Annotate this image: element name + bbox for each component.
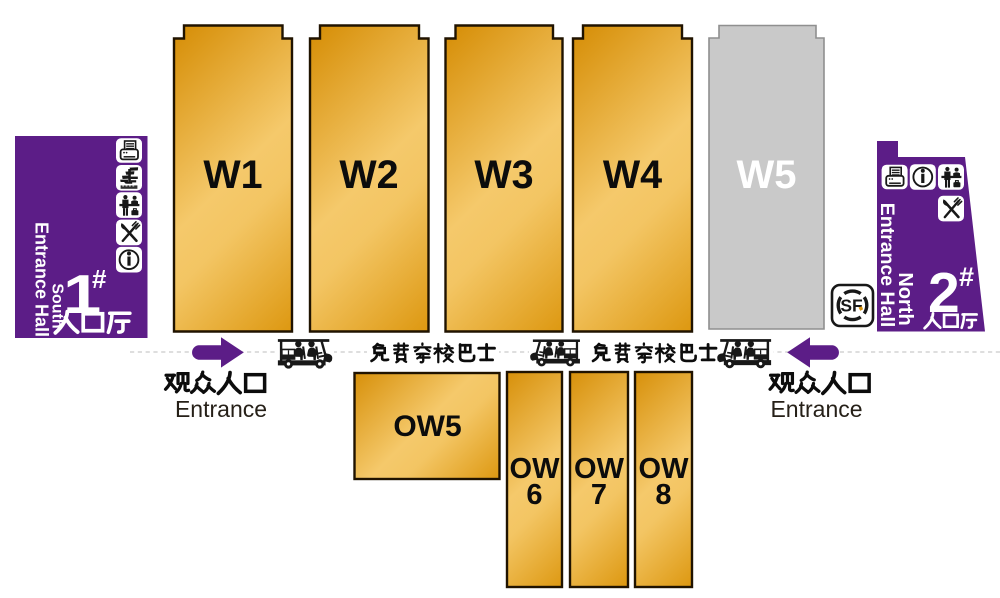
svg-text:SF: SF	[840, 296, 863, 316]
svg-text:#: #	[959, 262, 974, 292]
svg-text:W3: W3	[474, 153, 533, 197]
svg-text:W5: W5	[737, 153, 797, 197]
svg-text:W4: W4	[603, 153, 662, 197]
svg-text:7: 7	[591, 479, 607, 511]
svg-text:Entrance Hall: Entrance Hall	[876, 203, 898, 328]
svg-text:OW5: OW5	[393, 410, 461, 443]
svg-text:W1: W1	[203, 153, 262, 197]
svg-text:6: 6	[526, 479, 542, 511]
svg-text:Entrance: Entrance	[770, 396, 862, 422]
svg-text:W2: W2	[339, 153, 398, 197]
svg-text:8: 8	[655, 479, 671, 511]
svg-text:Entrance Hall: Entrance Hall	[32, 222, 52, 337]
svg-text:Entrance: Entrance	[175, 396, 267, 422]
svg-text:#: #	[92, 264, 107, 294]
